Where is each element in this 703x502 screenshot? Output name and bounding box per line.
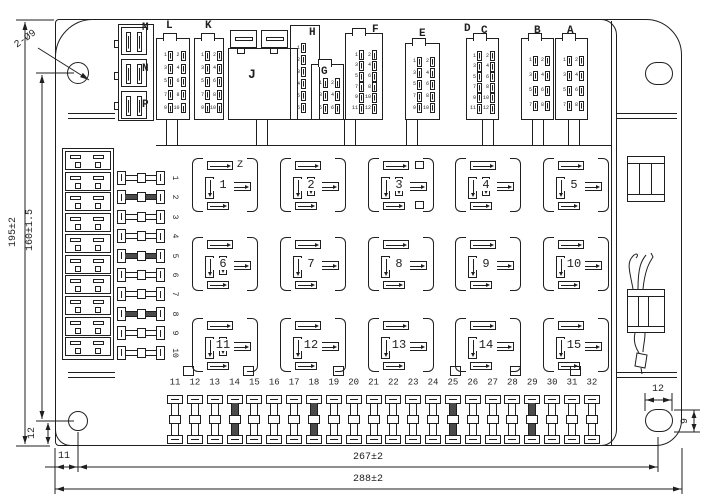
fuse-mid (308, 415, 320, 424)
fuse-25 (445, 395, 461, 444)
fuse-number-13: 13 (209, 379, 220, 388)
fuse-number-12: 12 (189, 379, 200, 388)
fuse-mid (229, 415, 241, 424)
fuse-number-24: 24 (428, 379, 439, 388)
clip-cap-line (627, 296, 665, 297)
fuse-number-29: 29 (527, 379, 538, 388)
fuse-number-15: 15 (249, 379, 260, 388)
clip-cap-line (627, 326, 665, 327)
body-tab (450, 366, 461, 376)
fuse-cap (286, 435, 302, 444)
fuse-27 (485, 395, 501, 444)
fuse-cap (544, 435, 560, 444)
fuse-mid (268, 415, 280, 424)
fuse-mid (546, 415, 558, 424)
fuse-cap (207, 435, 223, 444)
fuse-number-17: 17 (289, 379, 300, 388)
fuse-mid (586, 415, 598, 424)
fuse-23 (405, 395, 421, 444)
fuse-30 (544, 395, 560, 444)
fuse-number-20: 20 (348, 379, 359, 388)
fuse-number-14: 14 (229, 379, 240, 388)
fuse-cap (504, 435, 520, 444)
fuse-20 (346, 395, 362, 444)
fuse-mid (387, 415, 399, 424)
bottom-fuse-row: 1112131415161718192021222324252627282930… (0, 0, 703, 502)
fuse-cap (465, 435, 481, 444)
fuse-mid (189, 415, 201, 424)
dim-bottom-offset-left: 12 (28, 427, 38, 439)
fuse-14 (227, 395, 243, 444)
clip-cap-line (627, 163, 665, 164)
fuse-mid (566, 415, 578, 424)
fuse-cap (306, 435, 322, 444)
fuse-28 (504, 395, 520, 444)
fuse-cap (564, 435, 580, 444)
clip-bar (639, 164, 640, 194)
dim-slot-height: 9 (681, 418, 691, 424)
body-tab (333, 366, 344, 376)
fuse-cap (246, 435, 262, 444)
fuse-cap (445, 435, 461, 444)
fuse-mid (169, 415, 181, 424)
fuse-mid (407, 415, 419, 424)
fuse-number-11: 11 (170, 379, 181, 388)
fuse-32 (584, 395, 600, 444)
fuse-cap (346, 435, 362, 444)
clip-cap-line (627, 194, 665, 195)
body-tab (510, 366, 521, 376)
fuse-cap (167, 435, 183, 444)
fuse-22 (385, 395, 401, 444)
fuse-cap (266, 435, 282, 444)
fuse-number-32: 32 (586, 379, 597, 388)
fuse-number-18: 18 (309, 379, 320, 388)
dim-left-offset: 11 (58, 452, 70, 462)
fuse-number-26: 26 (467, 379, 478, 388)
fuse-cap (485, 435, 501, 444)
fuse-number-16: 16 (269, 379, 280, 388)
fuse-21 (366, 395, 382, 444)
fuse-cap (227, 435, 243, 444)
body-tab (570, 366, 581, 376)
fuse-number-19: 19 (328, 379, 339, 388)
fuse-cap (405, 435, 421, 444)
fuse-number-21: 21 (368, 379, 379, 388)
clip-bar (638, 297, 639, 326)
fuse-13 (207, 395, 223, 444)
fuse-31 (564, 395, 580, 444)
fuse-18 (306, 395, 322, 444)
fuse-15 (246, 395, 262, 444)
fuse-number-31: 31 (567, 379, 578, 388)
fuse-mid (248, 415, 260, 424)
fuse-mid (427, 415, 439, 424)
fuse-box-drawing: 13579246810 13579246810 123456 135246 13… (0, 0, 703, 502)
fuse-mid (209, 415, 221, 424)
fuse-mid (447, 415, 459, 424)
fuse-29 (524, 395, 540, 444)
fuse-mid (328, 415, 340, 424)
fuse-cap (385, 435, 401, 444)
fuse-cap (524, 435, 540, 444)
dim-height-holes: 160±1.5 (26, 209, 36, 251)
fuse-mid (506, 415, 518, 424)
fuse-19 (326, 395, 342, 444)
dim-width-holes: 267±2 (353, 453, 383, 463)
fuse-number-25: 25 (447, 379, 458, 388)
fuse-26 (465, 395, 481, 444)
fuse-cap (187, 435, 203, 444)
fuse-mid (526, 415, 538, 424)
dim-width-overall: 288±2 (353, 475, 383, 485)
fuse-number-30: 30 (547, 379, 558, 388)
fuse-mid (487, 415, 499, 424)
fuse-number-22: 22 (388, 379, 399, 388)
fuse-mid (288, 415, 300, 424)
fuse-24 (425, 395, 441, 444)
fuse-17 (286, 395, 302, 444)
fuse-number-23: 23 (408, 379, 419, 388)
body-tab (183, 366, 194, 376)
dim-height-overall: 195±2 (9, 217, 19, 247)
fuse-cap (326, 435, 342, 444)
dim-slot-width: 12 (652, 385, 664, 395)
fuse-cap (425, 435, 441, 444)
fuse-cap (584, 435, 600, 444)
clip-bar (648, 297, 649, 326)
fuse-11 (167, 395, 183, 444)
fuse-16 (266, 395, 282, 444)
clip-bar (651, 164, 652, 194)
fuse-number-28: 28 (507, 379, 518, 388)
fuse-number-27: 27 (487, 379, 498, 388)
fuse-mid (368, 415, 380, 424)
fuse-cap (366, 435, 382, 444)
fuse-mid (348, 415, 360, 424)
fuse-12 (187, 395, 203, 444)
fuse-mid (467, 415, 479, 424)
body-tab (243, 366, 254, 376)
